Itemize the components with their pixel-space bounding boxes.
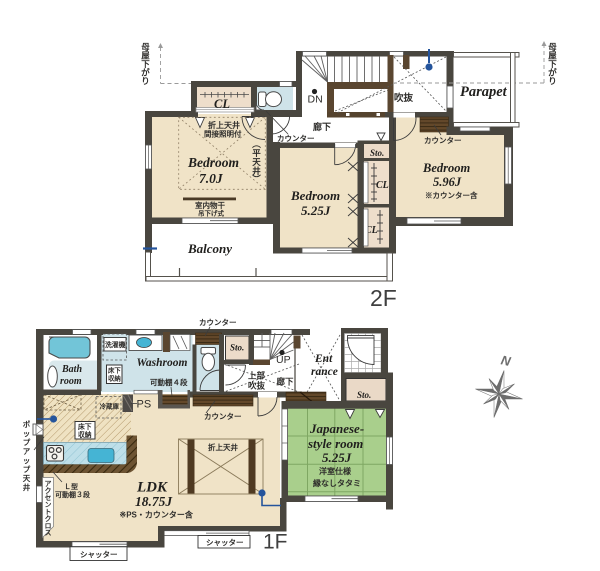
svg-text:間接照明付: 間接照明付 <box>204 129 242 139</box>
svg-text:廊下: 廊下 <box>313 121 331 132</box>
svg-text:吹抜: 吹抜 <box>394 92 414 104</box>
svg-text:Bedroom: Bedroom <box>290 188 340 203</box>
svg-text:折上天井: 折上天井 <box>208 120 240 130</box>
svg-text:Bedroom: Bedroom <box>422 161 471 175</box>
svg-text:5.96J: 5.96J <box>433 175 462 189</box>
svg-text:18.75J: 18.75J <box>135 494 173 509</box>
svg-text:カウンター: カウンター <box>199 317 237 327</box>
svg-text:Balcony: Balcony <box>187 241 232 256</box>
svg-text:床下: 床下 <box>108 366 121 375</box>
svg-text:収納: 収納 <box>108 374 121 383</box>
svg-text:洋室仕様: 洋室仕様 <box>319 466 352 476</box>
svg-text:洗濯機: 洗濯機 <box>105 340 126 349</box>
svg-text:room: room <box>60 376 82 387</box>
svg-text:Ent: Ent <box>314 353 333 365</box>
svg-text:CL: CL <box>214 97 230 111</box>
svg-text:UP: UP <box>276 354 291 366</box>
svg-text:上部: 上部 <box>248 371 266 381</box>
svg-text:折上天井: 折上天井 <box>208 442 238 452</box>
svg-text:可動棚３段: 可動棚３段 <box>55 490 90 499</box>
svg-text:Ｌ型: Ｌ型 <box>64 482 78 491</box>
svg-text:1F: 1F <box>263 531 288 554</box>
svg-text:Japanese-: Japanese- <box>309 421 364 436</box>
svg-text:カウンター: カウンター <box>204 411 242 421</box>
svg-text:Sto.: Sto. <box>357 390 371 400</box>
svg-text:床下: 床下 <box>78 422 92 431</box>
svg-text:2F: 2F <box>370 285 397 311</box>
svg-text:室内物干: 室内物干 <box>195 200 225 210</box>
svg-text:アクセントクロス: アクセントクロス <box>45 480 52 537</box>
svg-text:吹抜: 吹抜 <box>248 381 266 391</box>
svg-text:7.0J: 7.0J <box>199 171 224 186</box>
svg-text:Parapet: Parapet <box>460 84 508 100</box>
svg-text:廊下: 廊下 <box>277 377 295 387</box>
svg-text:カウンター: カウンター <box>277 133 315 143</box>
svg-text:Washroom: Washroom <box>137 357 188 369</box>
svg-text:シャッター: シャッター <box>206 537 244 547</box>
svg-text:︵平天井︶: ︵平天井︶ <box>251 139 261 184</box>
svg-text:5.25J: 5.25J <box>301 203 331 218</box>
svg-text:PS: PS <box>137 399 152 411</box>
svg-text:Bedroom: Bedroom <box>187 155 239 170</box>
svg-text:※PS・カウンター含: ※PS・カウンター含 <box>120 510 194 520</box>
svg-text:シャッター: シャッター <box>80 549 118 559</box>
svg-text:吊下げ式: 吊下げ式 <box>198 209 225 218</box>
svg-text:Sto.: Sto. <box>370 148 384 158</box>
svg-text:可動棚４段: 可動棚４段 <box>150 377 188 387</box>
svg-text:rance: rance <box>311 366 338 378</box>
svg-text:収納: 収納 <box>78 430 92 439</box>
svg-text:Bath: Bath <box>61 364 82 375</box>
svg-text:style room: style room <box>307 436 363 451</box>
svg-text:母屋下がり: 母屋下がり <box>548 42 557 86</box>
svg-text:ポップアップ天井: ポップアップ天井 <box>23 419 31 492</box>
svg-text:DN: DN <box>308 94 323 106</box>
svg-text:※カウンター含: ※カウンター含 <box>425 190 478 200</box>
svg-text:CL: CL <box>376 180 389 191</box>
svg-text:カウンター: カウンター <box>424 135 462 145</box>
svg-text:5.25J: 5.25J <box>322 450 352 465</box>
svg-text:冷蔵庫: 冷蔵庫 <box>100 402 120 411</box>
svg-text:縁なしタタミ: 縁なしタタミ <box>313 478 361 488</box>
svg-text:母屋下がり: 母屋下がり <box>141 42 150 86</box>
svg-text:Sto.: Sto. <box>230 343 244 353</box>
